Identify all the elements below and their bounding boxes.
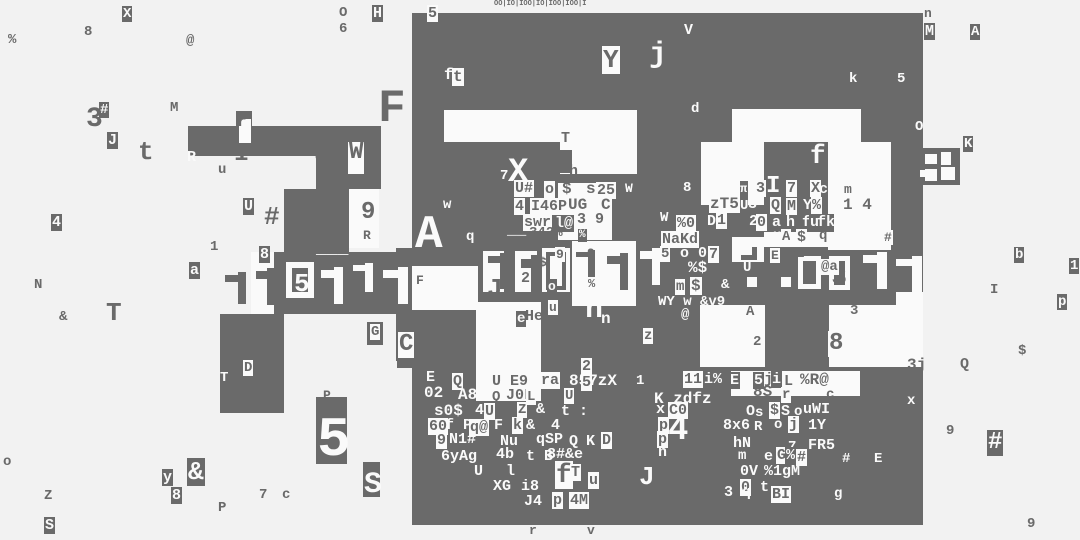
svg-text:5: 5 (294, 269, 310, 299)
svg-text:9: 9 (587, 246, 595, 261)
svg-text:5: 5 (317, 408, 351, 472)
svg-text:%: % (588, 277, 596, 291)
svg-text:J: J (487, 274, 503, 304)
svg-text:S: S (364, 468, 382, 502)
